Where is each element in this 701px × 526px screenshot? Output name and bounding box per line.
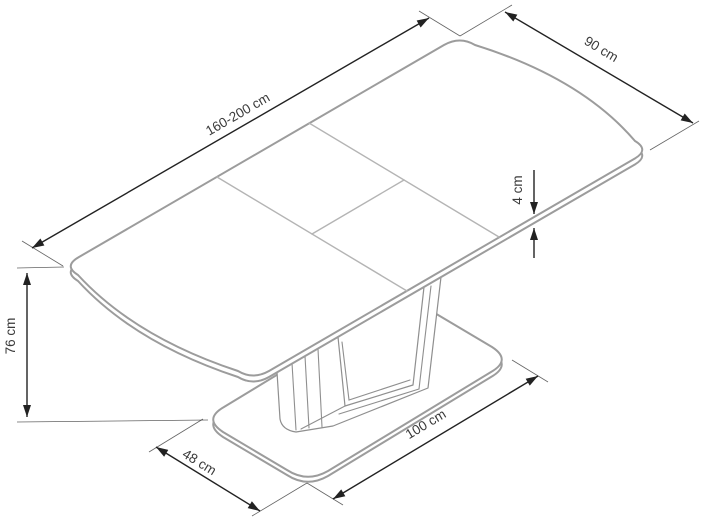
ground-line bbox=[17, 420, 208, 422]
dimension-label-height: 76 cm bbox=[3, 318, 18, 355]
dimension-label-thickness: 4 cm bbox=[510, 175, 525, 204]
base-length-extension-right bbox=[512, 360, 548, 382]
base-width-arrow bbox=[156, 447, 260, 511]
drawing-canvas: 76 cm 160-200 cm 90 cm bbox=[0, 0, 701, 526]
width-extension-right bbox=[650, 121, 699, 150]
length-extension-right bbox=[419, 11, 460, 36]
length-extension-left bbox=[22, 241, 63, 266]
width-extension-left bbox=[460, 5, 512, 36]
height-top-tick bbox=[17, 267, 64, 268]
table-dimension-drawing: 76 cm 160-200 cm 90 cm bbox=[0, 0, 701, 526]
base-width-extension-right bbox=[252, 483, 307, 516]
base-length-extension-left bbox=[307, 483, 343, 505]
